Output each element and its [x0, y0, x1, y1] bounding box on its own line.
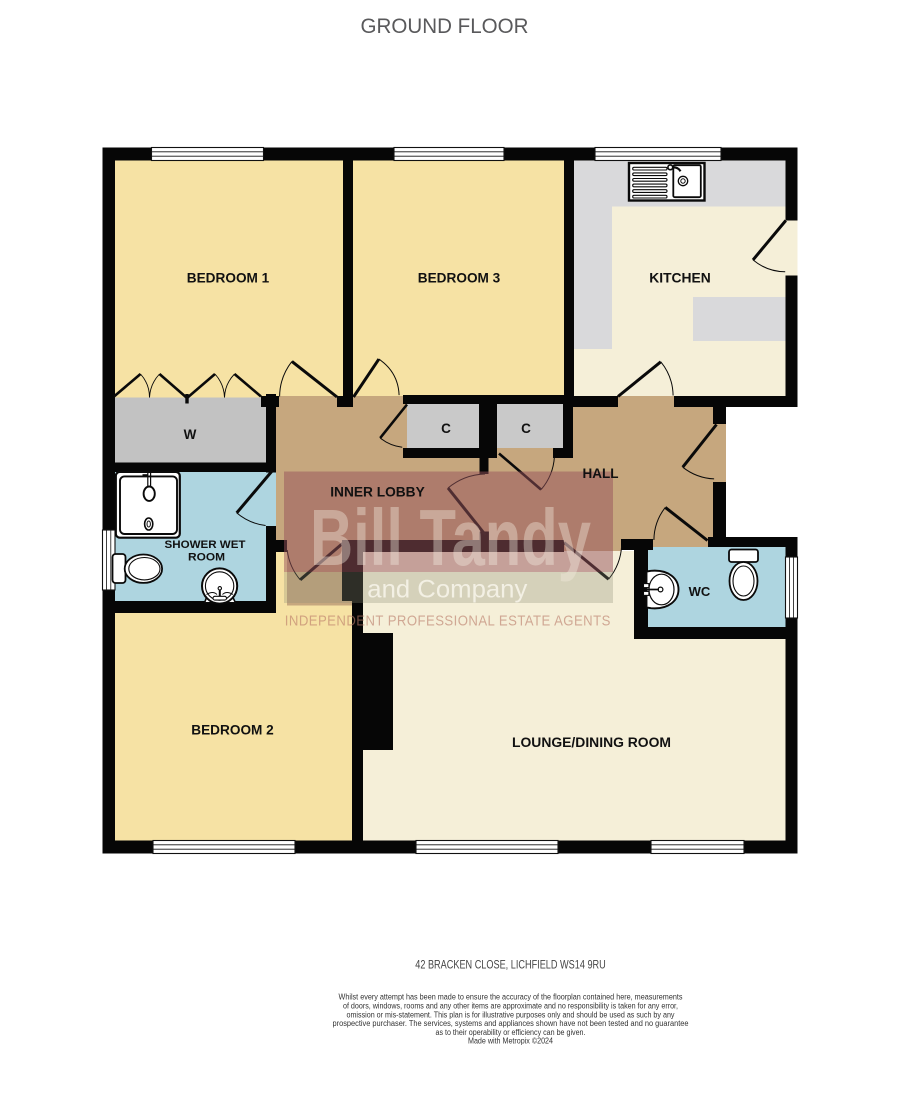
svg-text:C: C — [521, 421, 531, 436]
svg-text:Bill Tandy: Bill Tandy — [310, 493, 591, 582]
svg-text:WC: WC — [689, 584, 711, 599]
svg-text:Whilst every attempt has been: Whilst every attempt has been made to en… — [339, 993, 683, 1002]
svg-text:SHOWER WET: SHOWER WET — [165, 539, 246, 551]
svg-text:BEDROOM 1: BEDROOM 1 — [187, 271, 270, 286]
svg-text:HALL: HALL — [583, 466, 619, 481]
svg-text:Made with Metropix ©2024: Made with Metropix ©2024 — [468, 1037, 553, 1046]
svg-text:INDEPENDENT PROFESSIONAL ESTAT: INDEPENDENT PROFESSIONAL ESTATE AGENTS — [285, 612, 611, 629]
svg-text:as to their operability or eff: as to their operability or efficiency ca… — [436, 1028, 586, 1037]
svg-text:INNER LOBBY: INNER LOBBY — [330, 484, 425, 499]
svg-text:and Company: and Company — [367, 576, 528, 604]
svg-text:prospective purchaser. The ser: prospective purchaser. The services, sys… — [333, 1019, 690, 1028]
svg-text:42 BRACKEN CLOSE, LICHFIELD WS: 42 BRACKEN CLOSE, LICHFIELD WS14 9RU — [415, 958, 606, 972]
svg-text:omission or mis-statement. Thi: omission or mis-statement. This plan is … — [347, 1010, 675, 1019]
svg-text:KITCHEN: KITCHEN — [649, 271, 711, 286]
svg-text:of doors, windows, rooms and a: of doors, windows, rooms and any other i… — [343, 1002, 678, 1011]
svg-text:GROUND FLOOR: GROUND FLOOR — [361, 14, 529, 38]
svg-text:BEDROOM 2: BEDROOM 2 — [191, 723, 274, 738]
svg-text:LOUNGE/DINING ROOM: LOUNGE/DINING ROOM — [512, 735, 671, 750]
svg-text:W: W — [184, 427, 197, 442]
svg-text:BEDROOM 3: BEDROOM 3 — [418, 271, 501, 286]
svg-text:C: C — [441, 421, 451, 436]
svg-text:ROOM: ROOM — [188, 552, 225, 564]
